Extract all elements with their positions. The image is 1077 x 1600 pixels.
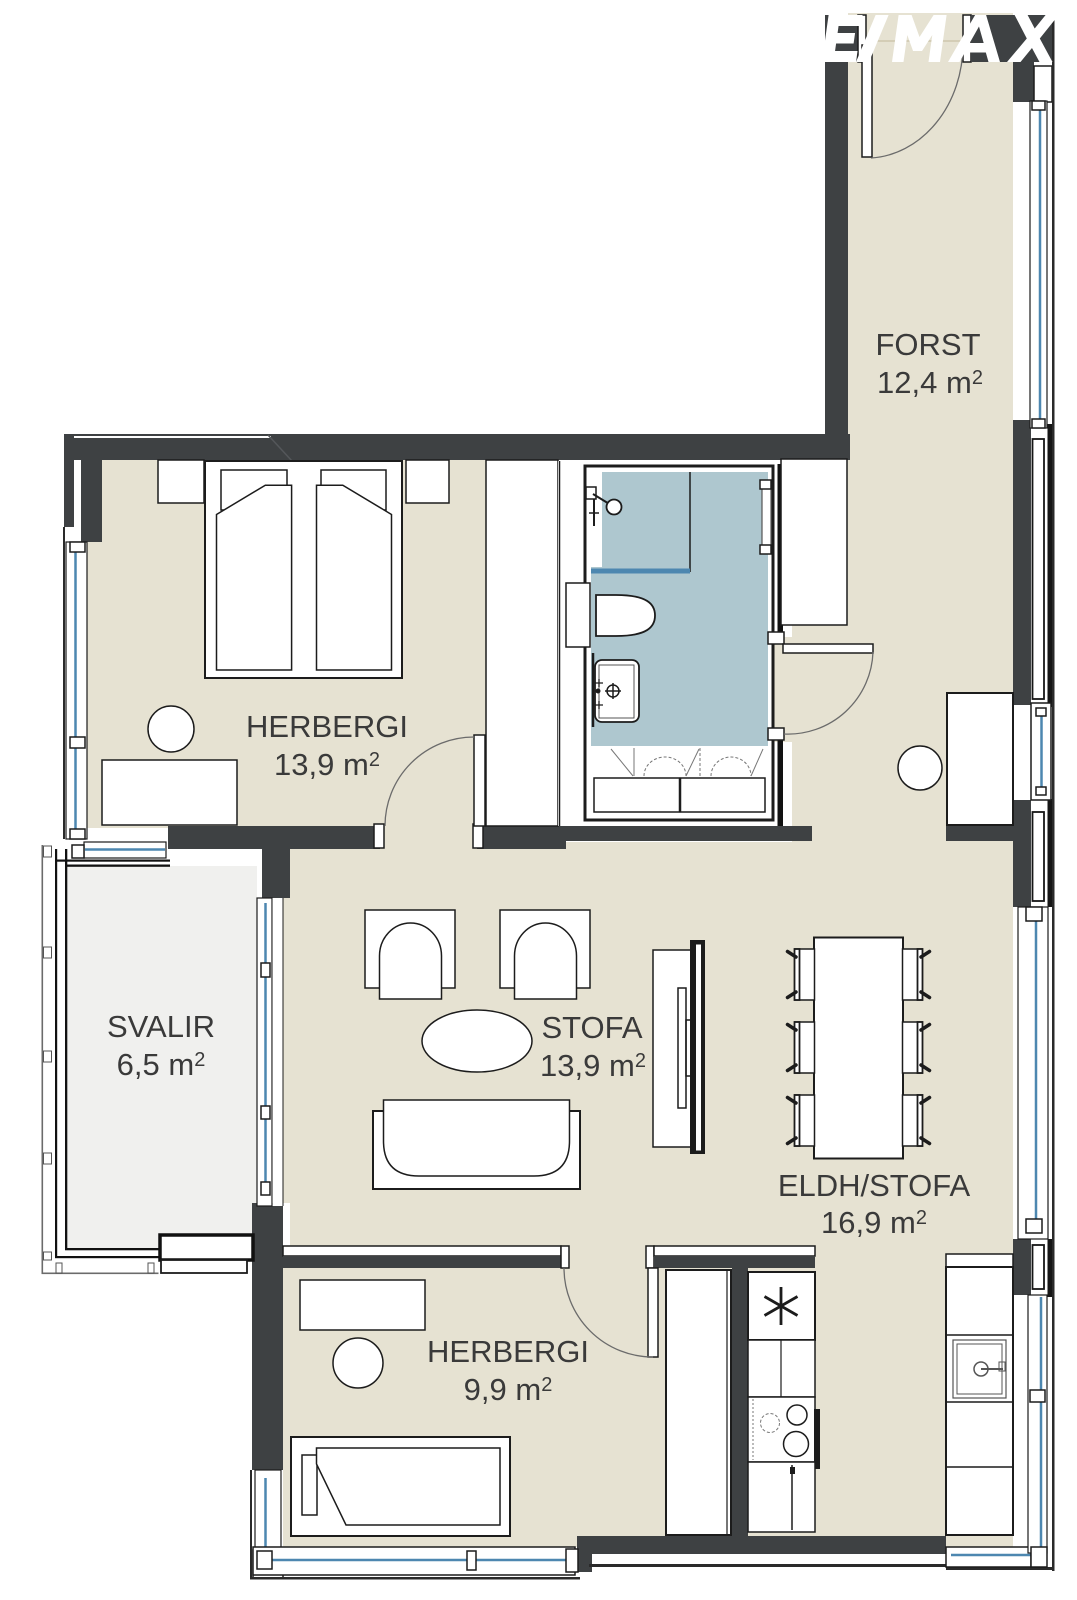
svg-text:HERBERGI: HERBERGI (246, 709, 408, 744)
svg-text:ELDH/STOFA: ELDH/STOFA (778, 1168, 971, 1203)
svg-text:16,9 m2: 16,9 m2 (821, 1205, 927, 1240)
svg-text:SVALIR: SVALIR (107, 1009, 215, 1044)
svg-text:6,5 m2: 6,5 m2 (117, 1047, 206, 1082)
svg-text:FORST: FORST (875, 327, 980, 362)
svg-text:9,9 m2: 9,9 m2 (464, 1372, 553, 1407)
svg-text:12,4 m2: 12,4 m2 (877, 365, 983, 400)
svg-text:13,9 m2: 13,9 m2 (274, 747, 380, 782)
svg-text:HERBERGI: HERBERGI (427, 1334, 589, 1369)
svg-text:STOFA: STOFA (541, 1010, 642, 1045)
svg-text:13,9 m2: 13,9 m2 (540, 1048, 646, 1083)
